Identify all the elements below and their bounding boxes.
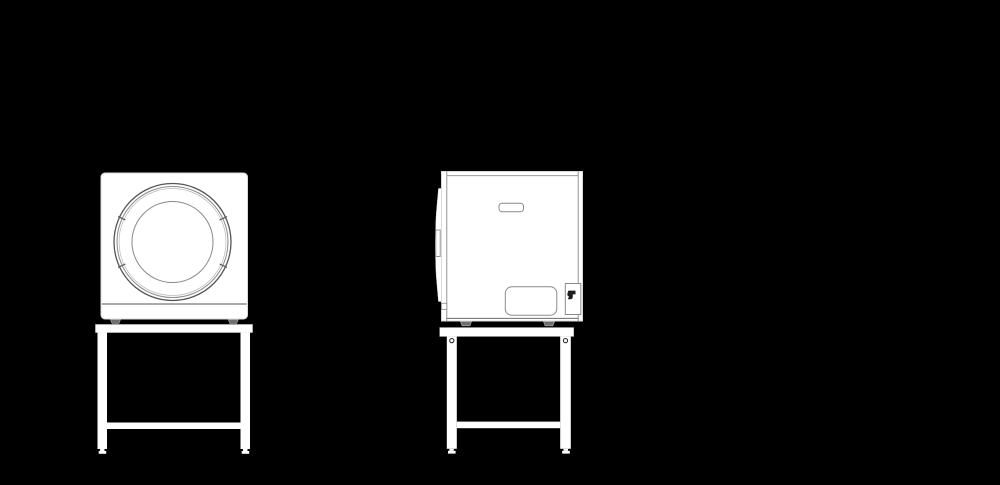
stand-bolt-hole-front (450, 339, 454, 343)
machine-foot-left (111, 320, 121, 324)
stand-foot-front (448, 449, 456, 454)
stand-foot-right (242, 449, 250, 454)
door-side-handle (436, 230, 440, 257)
stand-leg-rear (560, 336, 571, 448)
machine-foot-rear (544, 322, 555, 326)
stand-foot-left (99, 449, 107, 454)
stand-top-rail-side (440, 328, 574, 337)
stand-leg-right (241, 333, 251, 450)
service-panel (505, 287, 557, 315)
door-bottom-step (442, 303, 447, 309)
hose-hook-box (565, 284, 581, 315)
stand-foot-rear (562, 449, 570, 454)
figure-front-view (96, 173, 253, 454)
stand-crossbar-side (457, 422, 560, 429)
machine-foot-right (228, 320, 238, 324)
drawing-canvas (0, 0, 1000, 485)
stand-top-rail (96, 325, 253, 333)
stand-leg-left (98, 333, 108, 450)
control-recess (499, 203, 524, 212)
stand-leg-front (447, 336, 457, 448)
stand-bolt-hole-rear (563, 339, 567, 343)
technical-drawing (0, 0, 1000, 485)
figure-side-view (435, 172, 582, 454)
stand-crossbar (107, 423, 241, 430)
machine-foot-front (461, 322, 472, 326)
